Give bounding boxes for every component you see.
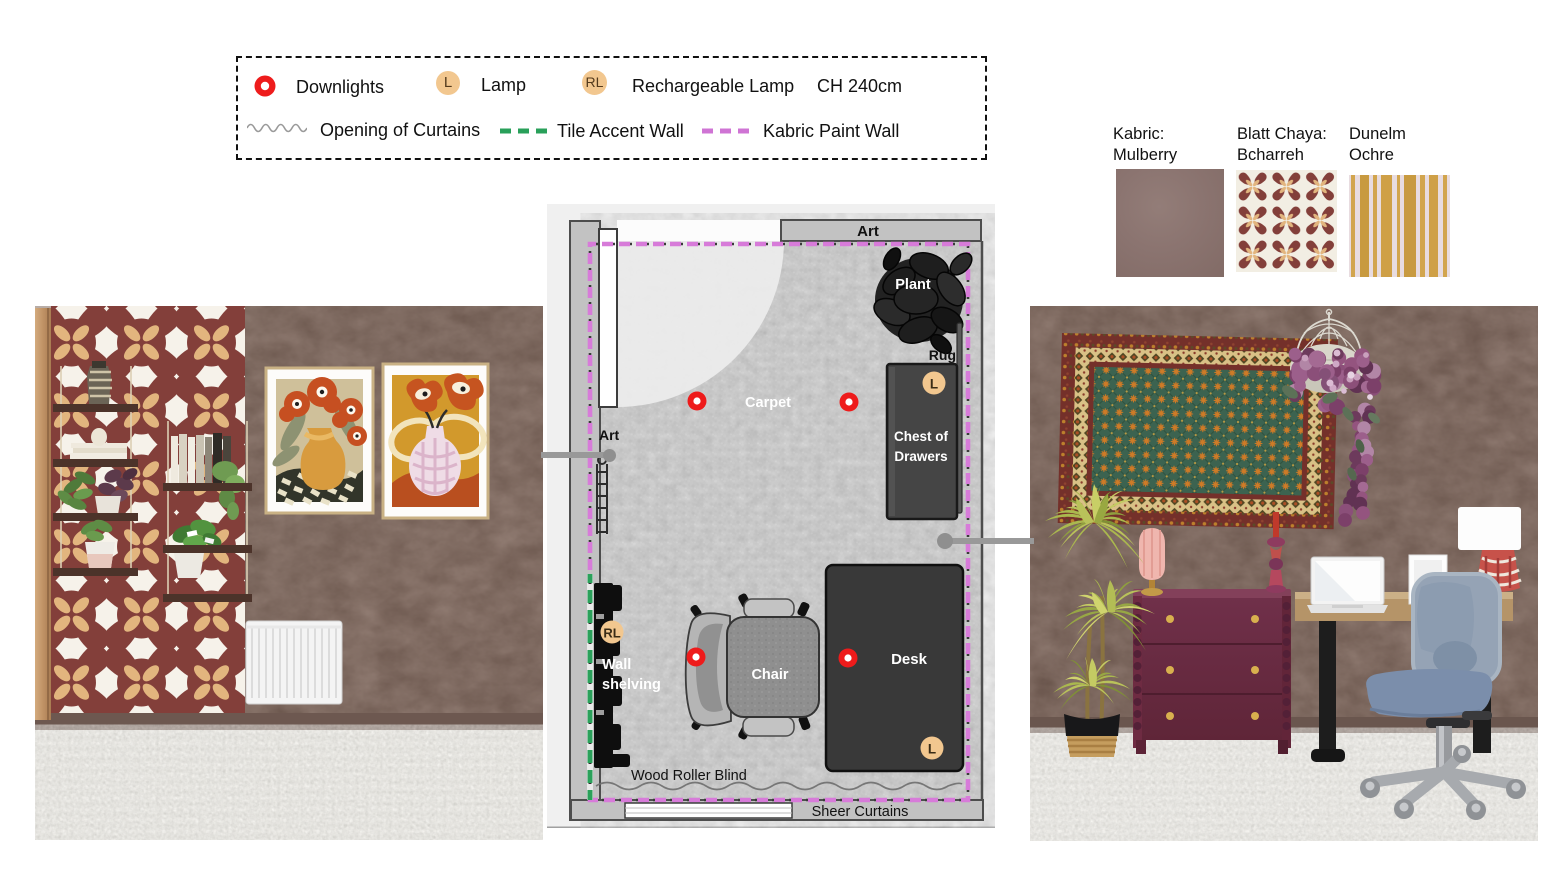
svg-text:L: L xyxy=(930,377,938,392)
svg-text:Desk: Desk xyxy=(891,651,928,668)
svg-text:Art: Art xyxy=(857,223,879,240)
svg-text:shelving: shelving xyxy=(602,677,661,693)
svg-text:Wall: Wall xyxy=(602,657,631,673)
svg-text:L: L xyxy=(928,742,936,757)
svg-text:Drawers: Drawers xyxy=(894,449,947,464)
svg-text:Carpet: Carpet xyxy=(745,395,791,411)
svg-text:Rug: Rug xyxy=(929,347,956,363)
svg-text:Wood Roller Blind: Wood Roller Blind xyxy=(631,768,747,784)
svg-text:Chair: Chair xyxy=(751,667,788,683)
svg-text:Plant: Plant xyxy=(895,277,931,293)
svg-text:Sheer Curtains: Sheer Curtains xyxy=(812,804,909,820)
svg-text:RL: RL xyxy=(603,626,620,641)
svg-text:Chest of: Chest of xyxy=(894,429,949,444)
svg-text:Art: Art xyxy=(599,427,620,443)
